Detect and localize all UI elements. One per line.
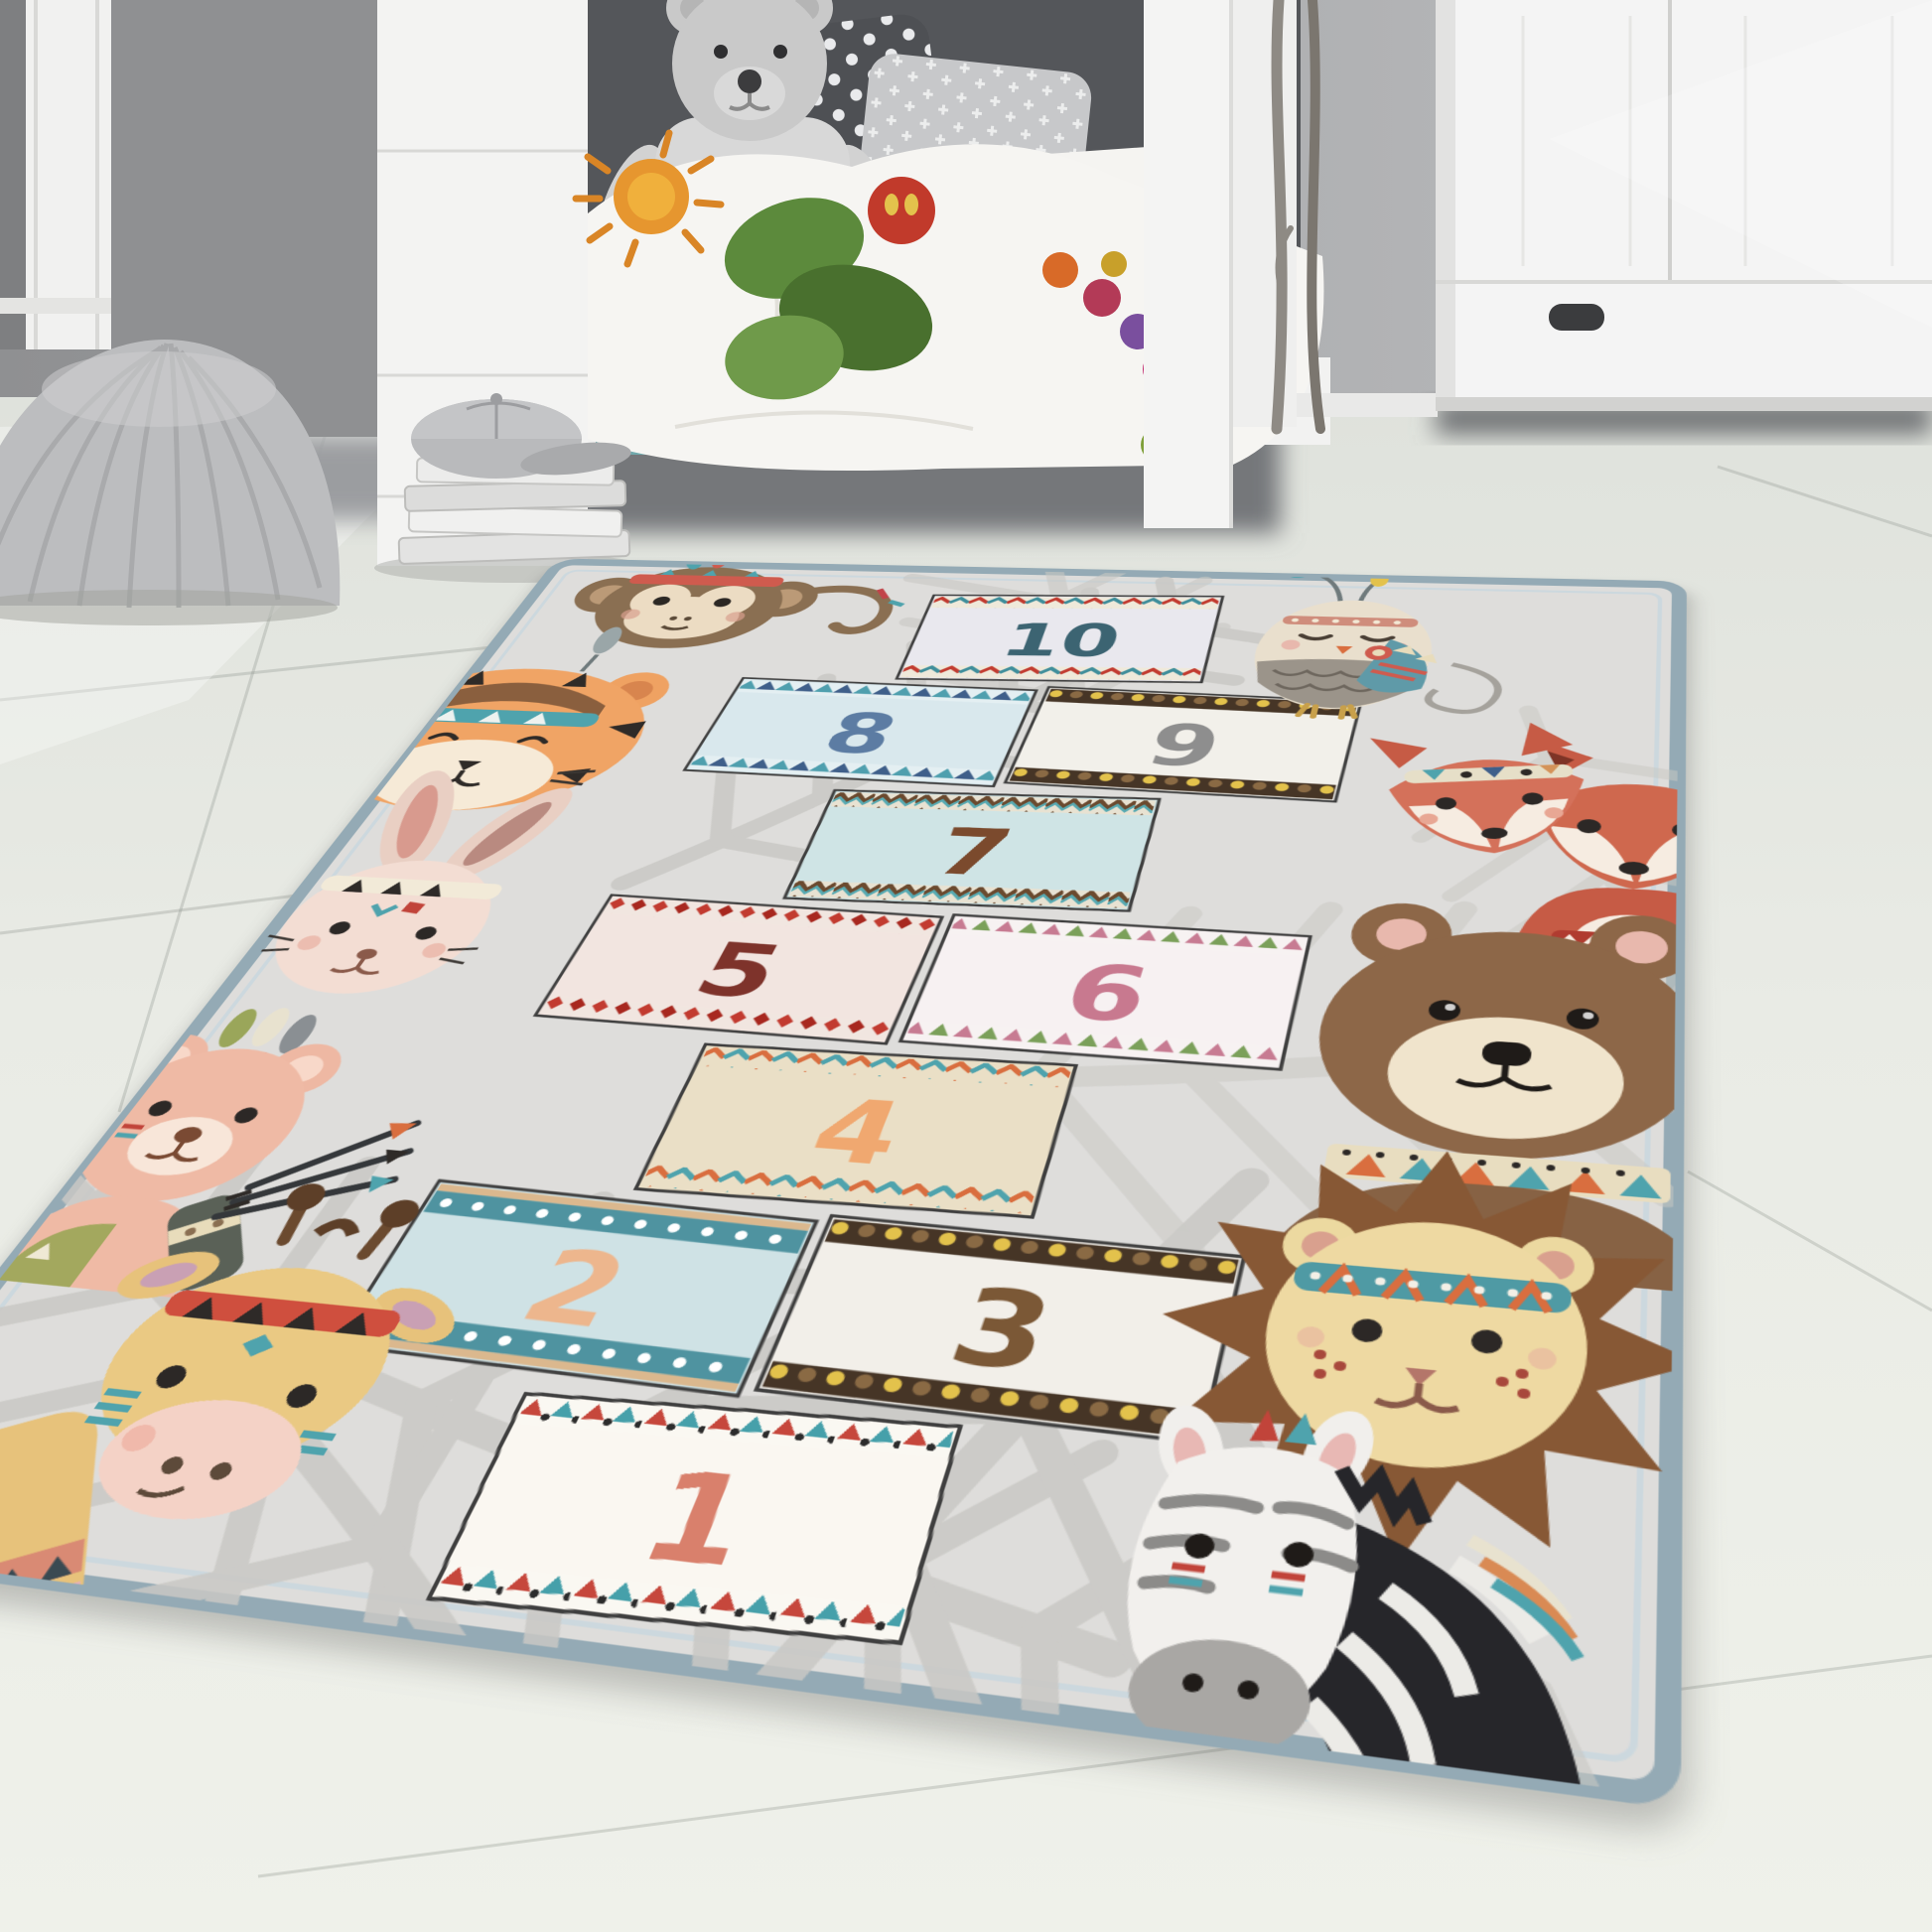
hopscotch-square-5: 5	[535, 895, 942, 1043]
window-frame	[0, 0, 111, 349]
hopscotch-square-7: 7	[784, 790, 1160, 911]
hopscotch-square-1: 1	[430, 1394, 960, 1644]
wardrobe-handle	[1549, 304, 1604, 331]
duvet-caterpillar-head	[868, 177, 935, 244]
nursery-photo: 10 8 9 7	[0, 0, 1932, 1932]
hopscotch-square-10: 10	[897, 595, 1223, 682]
wardrobe	[1436, 0, 1932, 411]
hopscotch-square-4: 4	[635, 1044, 1076, 1217]
bed-front-post	[1144, 0, 1231, 528]
hopscotch-square-8: 8	[684, 678, 1036, 786]
hopscotch-square-6: 6	[900, 914, 1311, 1069]
square-10-number: 10	[993, 616, 1127, 668]
